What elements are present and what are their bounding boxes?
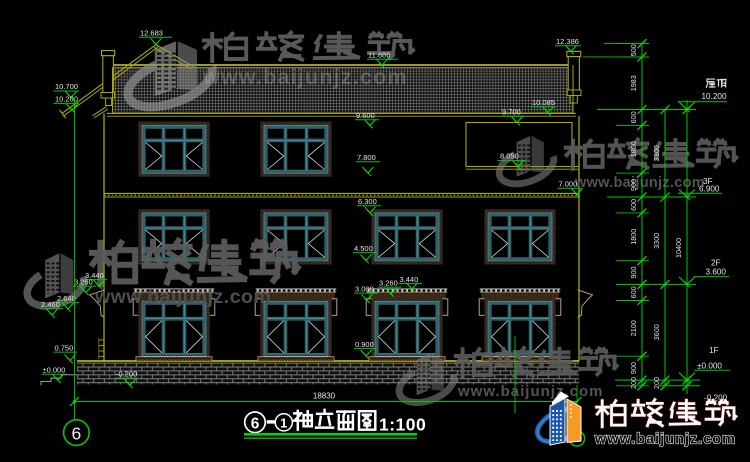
svg-text:3.600: 3.600	[706, 268, 727, 277]
svg-text:900: 900	[629, 362, 638, 374]
svg-text:600: 600	[629, 199, 638, 211]
svg-text:12.386: 12.386	[556, 37, 579, 46]
svg-text:500: 500	[629, 44, 638, 56]
svg-text:2100: 2100	[629, 320, 638, 336]
svg-text:600: 600	[629, 111, 638, 123]
svg-text:-0.200: -0.200	[116, 370, 137, 379]
svg-text:www.baijunjz.com: www.baijunjz.com	[202, 65, 408, 89]
svg-text:3.000: 3.000	[355, 285, 374, 294]
svg-text:200: 200	[652, 377, 661, 389]
svg-text:1800: 1800	[629, 229, 638, 245]
svg-text:10400: 10400	[674, 238, 683, 258]
svg-text:1800: 1800	[629, 141, 638, 157]
svg-text:4.500: 4.500	[354, 244, 373, 253]
svg-text:12.683: 12.683	[140, 29, 163, 38]
svg-text:1:100: 1:100	[379, 414, 426, 434]
svg-text:600: 600	[629, 286, 638, 298]
svg-text:7.000: 7.000	[559, 180, 578, 189]
svg-text:±0.000: ±0.000	[697, 361, 722, 370]
svg-text:11.886: 11.886	[368, 51, 390, 60]
svg-text:3.440: 3.440	[400, 275, 419, 284]
svg-text:3.260: 3.260	[379, 279, 398, 288]
svg-text:2.640: 2.640	[57, 294, 76, 303]
svg-text:0.900: 0.900	[355, 340, 374, 349]
svg-text:www.baijunjz.com: www.baijunjz.com	[94, 286, 271, 308]
svg-text:3600: 3600	[652, 324, 661, 340]
svg-text:1F: 1F	[709, 346, 719, 355]
svg-text:2F: 2F	[711, 259, 721, 268]
svg-text:6: 6	[72, 423, 82, 443]
svg-text:3300: 3300	[652, 145, 661, 161]
svg-text:3300: 3300	[652, 233, 661, 249]
svg-text:900: 900	[629, 267, 638, 279]
svg-text:7.800: 7.800	[357, 153, 376, 162]
svg-text:3.260: 3.260	[74, 278, 93, 287]
svg-text:10.200: 10.200	[702, 92, 727, 101]
svg-text:200: 200	[629, 377, 638, 389]
svg-text:10.700: 10.700	[55, 82, 78, 91]
svg-text:1: 1	[280, 415, 287, 430]
svg-text:900: 900	[629, 179, 638, 191]
svg-text:2.460: 2.460	[41, 300, 60, 309]
svg-text:10.085: 10.085	[532, 98, 555, 107]
svg-text:9.600: 9.600	[356, 111, 375, 120]
svg-text:6: 6	[251, 415, 260, 432]
svg-text:www.baijunjz.com: www.baijunjz.com	[574, 175, 705, 191]
svg-text:0.750: 0.750	[55, 344, 74, 353]
svg-text:6.300: 6.300	[358, 197, 377, 206]
svg-text:18830: 18830	[313, 391, 336, 400]
svg-text:www.baijunjz.com: www.baijunjz.com	[594, 432, 736, 448]
svg-text:1983: 1983	[629, 75, 638, 91]
svg-text:9.700: 9.700	[502, 108, 521, 117]
svg-text:8.050: 8.050	[500, 152, 519, 161]
svg-text:6.900: 6.900	[699, 185, 720, 194]
svg-text:±0.000: ±0.000	[43, 366, 66, 375]
